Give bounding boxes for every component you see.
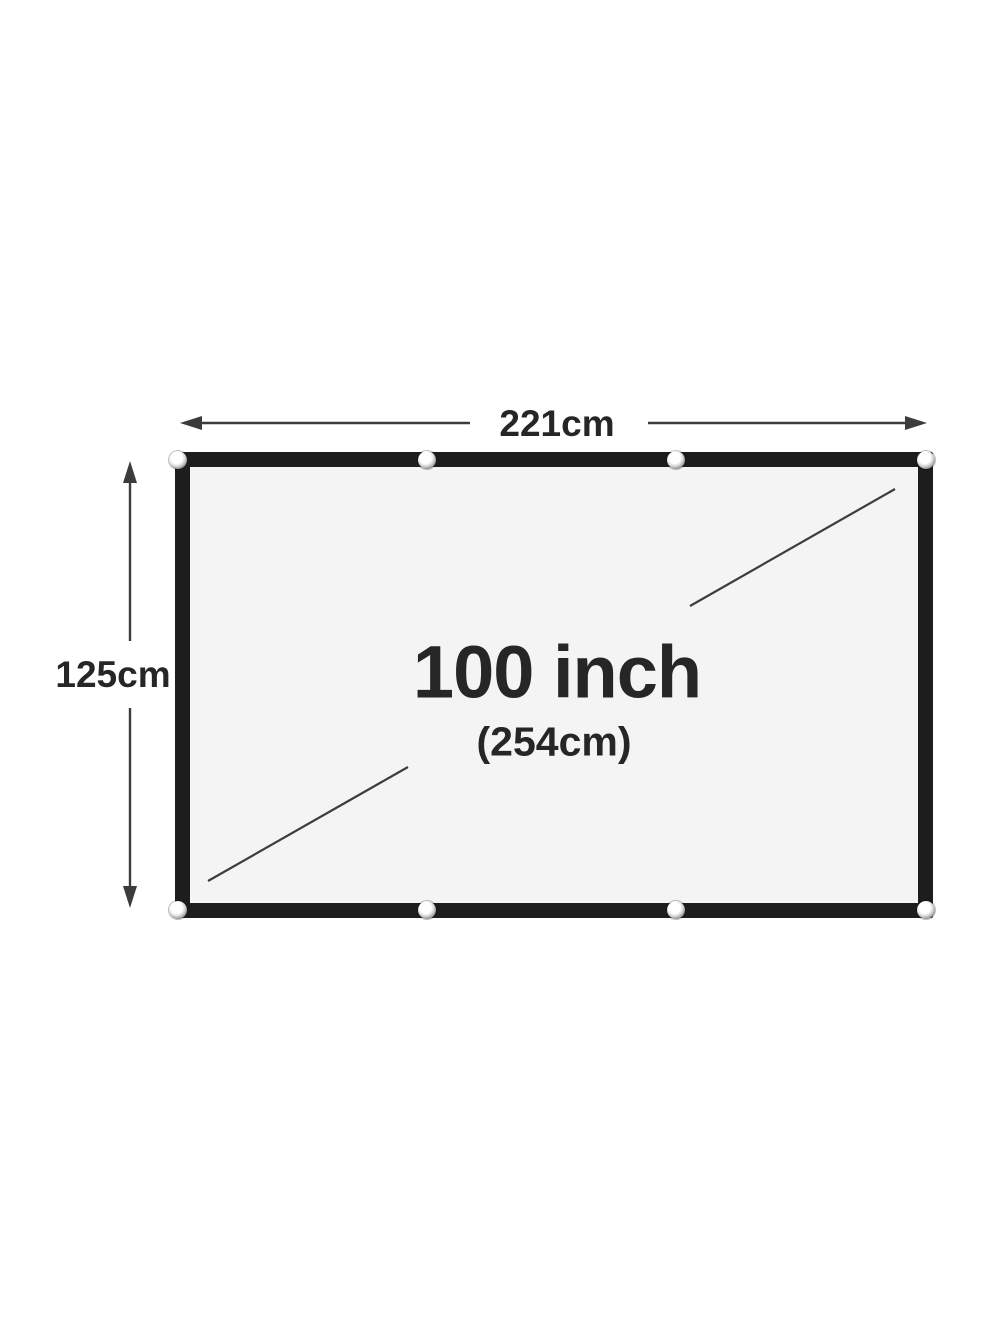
- grommet-icon: [418, 901, 436, 919]
- grommet-icon: [667, 451, 685, 469]
- arrowhead-left-icon: [180, 416, 202, 430]
- height-label: 125cm: [55, 654, 170, 696]
- grommet-icon: [917, 901, 935, 919]
- diagonal-size-label: 100 inch: [413, 630, 701, 715]
- arrowhead-up-icon: [123, 461, 137, 483]
- grommet-icon: [418, 451, 436, 469]
- arrowhead-down-icon: [123, 886, 137, 908]
- width-label: 221cm: [499, 403, 614, 445]
- grommet-icon: [169, 451, 187, 469]
- grommet-icon: [667, 901, 685, 919]
- product-size-diagram: 221cm 125cm 100 inch (254cm): [0, 0, 1000, 1333]
- grommet-icon: [917, 451, 935, 469]
- arrowhead-right-icon: [905, 416, 927, 430]
- grommet-icon: [169, 901, 187, 919]
- diagonal-size-cm-label: (254cm): [477, 719, 632, 766]
